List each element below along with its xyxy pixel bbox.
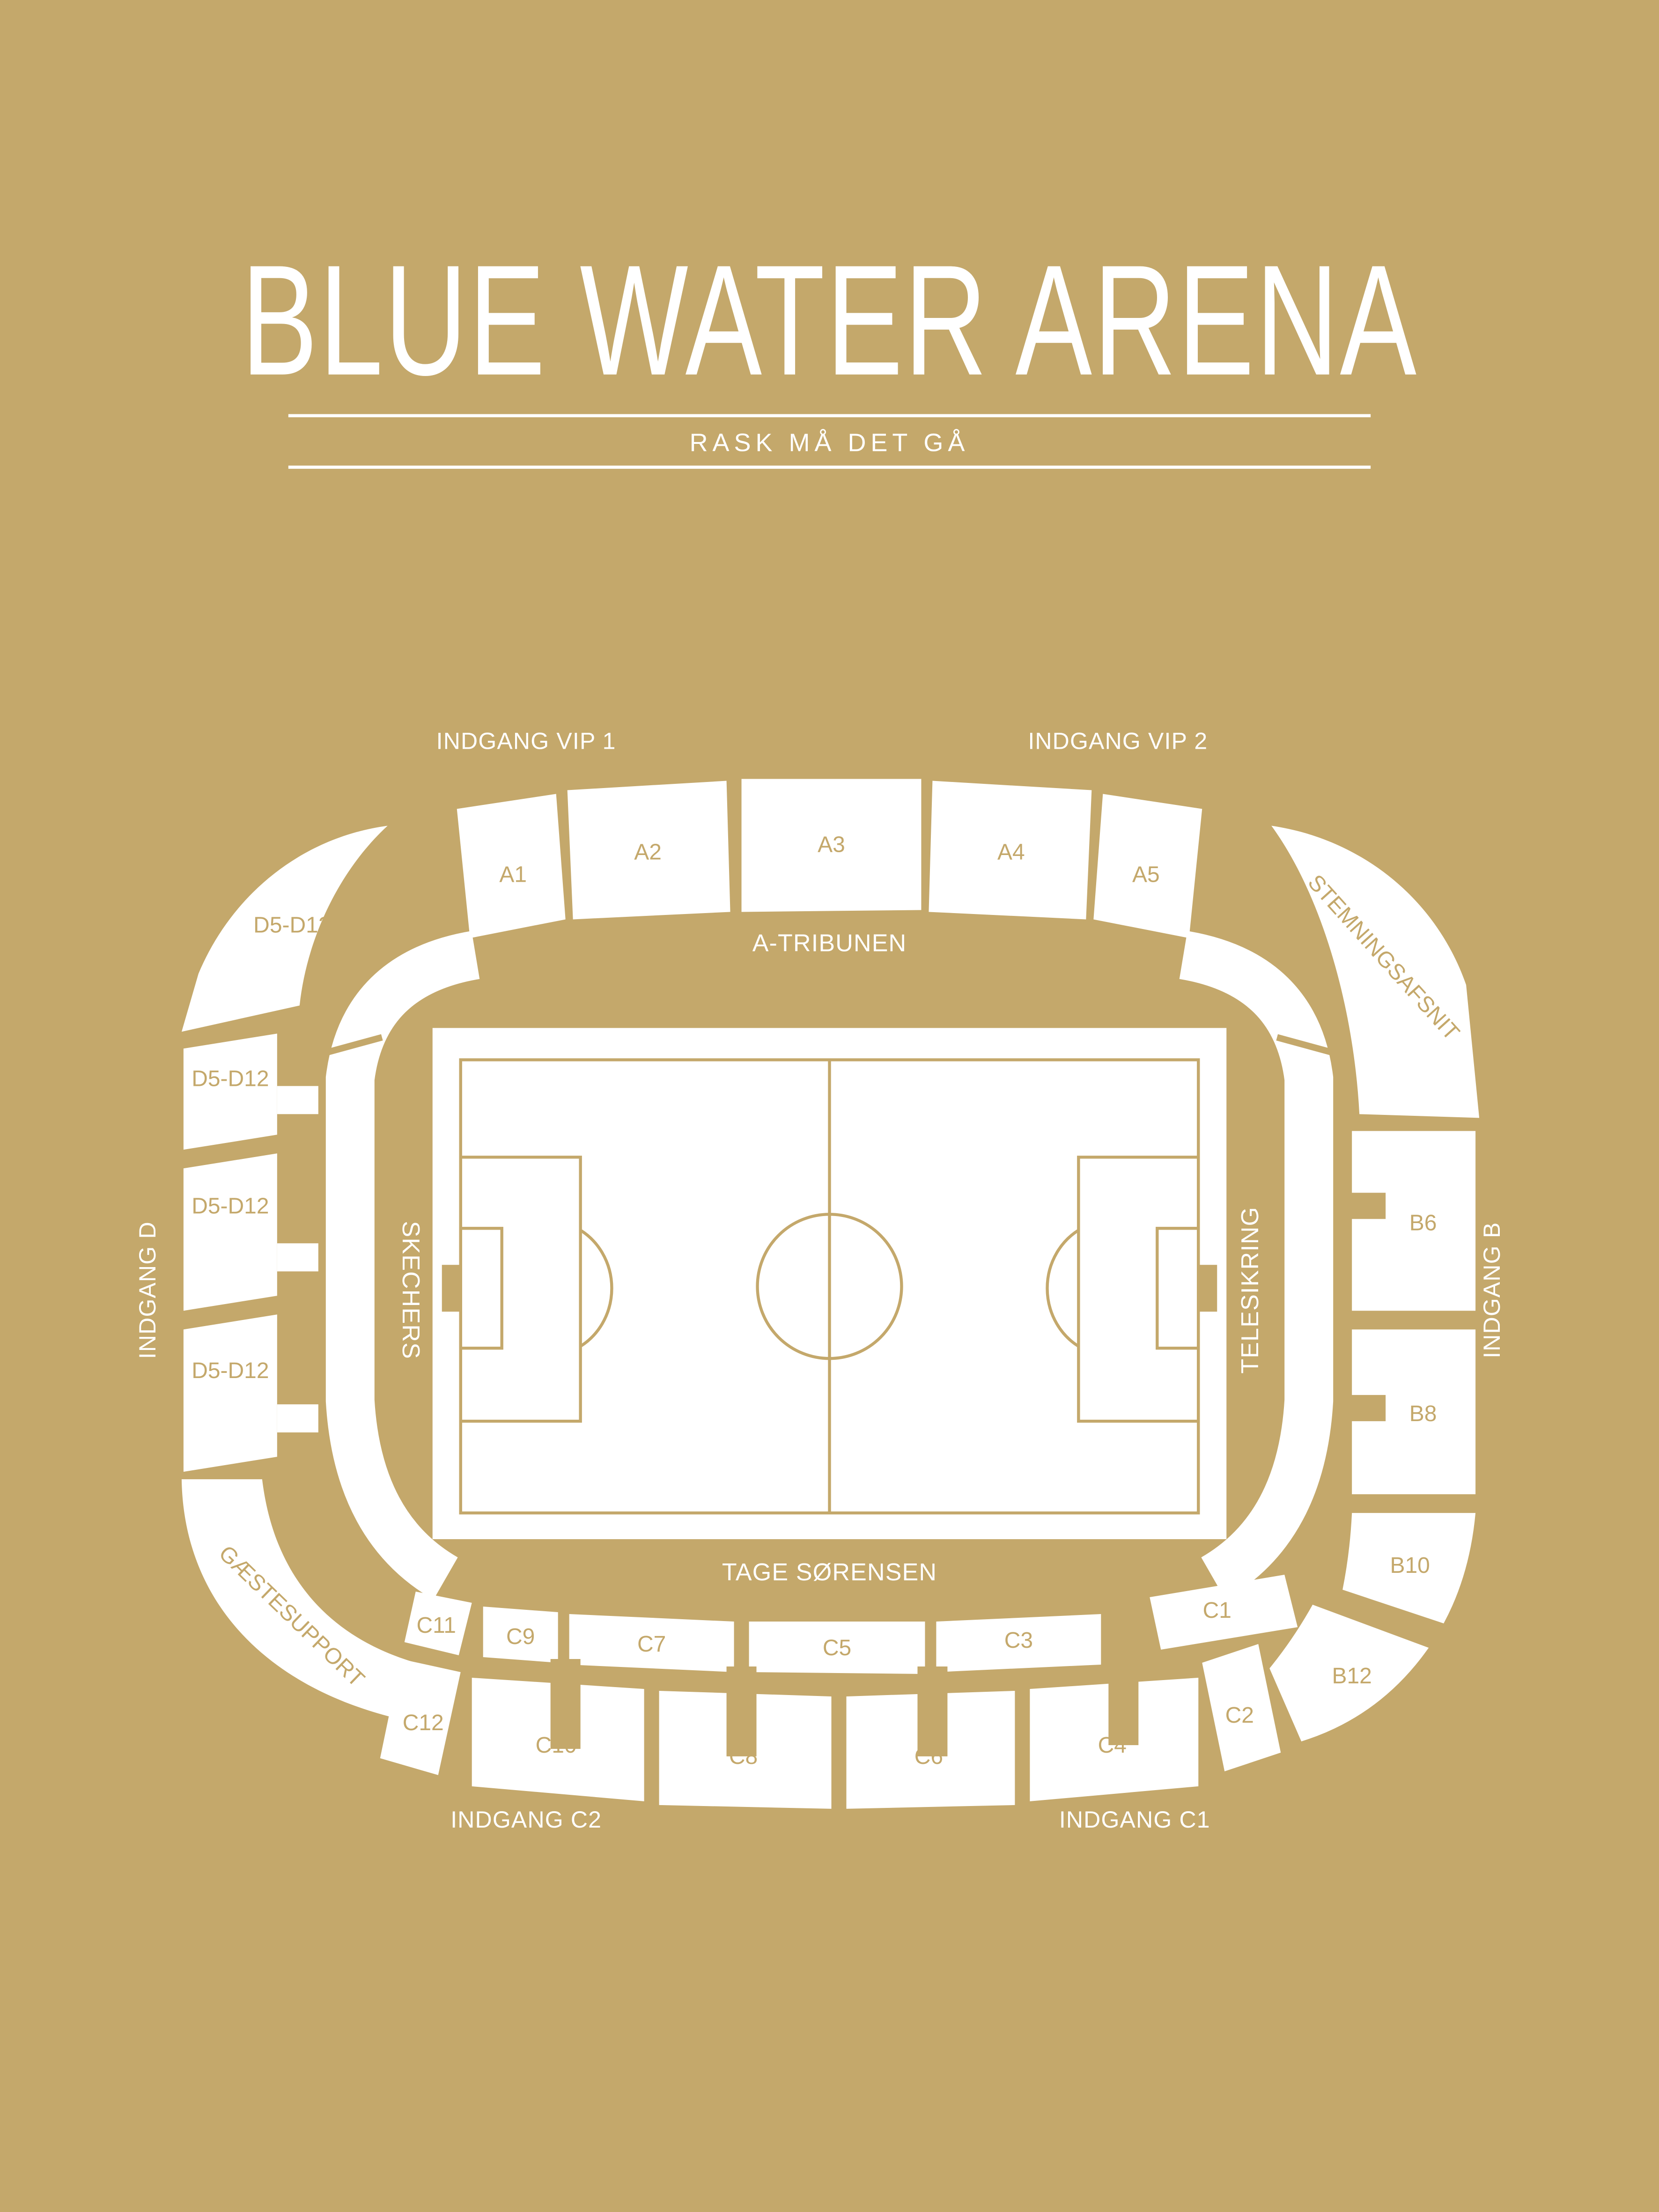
section-a5-label: A5 [1132,862,1160,887]
section-c5-label: C5 [823,1636,851,1660]
section-c12-label: C12 [403,1711,444,1735]
section-d-3 [184,1153,277,1311]
entrance-c2-label: INDGANG C2 [450,1806,602,1833]
d2-tunnel-tab [277,1086,318,1114]
entrance-vip2-label: INDGANG VIP 2 [1028,728,1208,754]
section-c10-label: C10 [536,1733,577,1758]
b8-stair-notch [1337,1395,1386,1421]
section-a1-label: A1 [499,862,527,887]
section-c3-label: C3 [1004,1628,1033,1653]
entrance-d-label: INDGANG D [134,1221,161,1359]
section-b12-label: B12 [1332,1664,1372,1688]
entrance-vip1-label: INDGANG VIP 1 [436,728,616,754]
stadium-seating-poster: BLUE WATER ARENA RASK MÅ DET GÅ INDGANG … [0,0,1659,2212]
section-c4-label: C4 [1098,1733,1127,1758]
goal-left [442,1265,461,1312]
section-d-2 [184,1033,277,1150]
entrance-b-label: INDGANG B [1479,1222,1505,1358]
c-stair-tab-4 [1108,1655,1138,1745]
page-title: BLUE WATER ARENA [241,233,1418,408]
goal-right [1198,1265,1217,1312]
section-b10-label: B10 [1390,1553,1430,1578]
section-b8-label: B8 [1409,1401,1437,1426]
section-c1-label: C1 [1203,1598,1231,1623]
d4-tunnel-tab [277,1404,318,1432]
stand-west-label: SKECHERS [397,1221,424,1359]
c-stair-tab-2 [727,1666,757,1756]
section-a4-label: A4 [997,840,1025,864]
section-c8-label: C8 [729,1744,758,1769]
section-a3-label: A3 [818,832,845,857]
field [433,1028,1227,1539]
poster: BLUE WATER ARENA RASK MÅ DET GÅ INDGANG … [0,0,1659,2212]
section-c9-label: C9 [506,1624,535,1649]
entrance-c1-label: INDGANG C1 [1059,1806,1210,1833]
section-c2-label: C2 [1225,1703,1254,1728]
section-c7-label: C7 [637,1632,666,1657]
page-subtitle: RASK MÅ DET GÅ [690,429,970,457]
b6-stair-notch [1337,1193,1386,1219]
section-d1-label: D5-D12 [253,913,331,937]
stand-north-label: A-TRIBUNEN [752,929,907,957]
section-b6-label: B6 [1409,1210,1437,1235]
section-a2-label: A2 [634,840,662,864]
stand-east-label: TELESIKRING [1237,1207,1264,1374]
stand-south-label: TAGE SØRENSEN [722,1559,937,1586]
c-stair-tab-3 [917,1666,947,1756]
section-d4-label: D5-D12 [192,1358,269,1383]
section-c6-label: C6 [914,1744,943,1769]
section-c11-label: C11 [417,1613,456,1638]
d3-tunnel-tab [277,1243,318,1271]
section-d3-label: D5-D12 [192,1194,269,1218]
section-d2-label: D5-D12 [192,1066,269,1091]
section-d-4 [184,1314,277,1472]
